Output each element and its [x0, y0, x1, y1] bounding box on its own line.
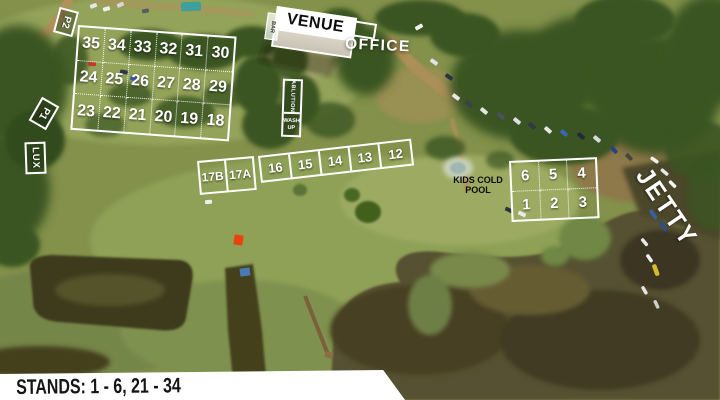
- stand-35: 35: [77, 27, 105, 62]
- stand-34: 34: [103, 29, 131, 64]
- stand-17B: 17B: [199, 161, 228, 193]
- lux-label: LUX: [27, 144, 45, 173]
- wash-up-label: WASH UP: [283, 114, 300, 136]
- p2-label: P2: [55, 9, 76, 34]
- lux-sign: LUX: [24, 142, 46, 175]
- stand-4: 4: [567, 159, 596, 189]
- stand-3: 3: [568, 188, 597, 218]
- stand-29: 29: [204, 70, 232, 105]
- stand-14: 14: [320, 148, 352, 174]
- stand-16: 16: [260, 154, 292, 180]
- stand-23: 23: [72, 94, 100, 129]
- red-tent-marker: [233, 234, 243, 245]
- stand-25: 25: [101, 63, 129, 98]
- ablution-label-wrap: ABLUTION: [284, 81, 301, 115]
- stand-13: 13: [350, 144, 382, 170]
- stand-26: 26: [126, 64, 154, 99]
- stand-27: 27: [152, 66, 180, 101]
- stand-31: 31: [180, 35, 208, 70]
- stand-28: 28: [178, 68, 206, 103]
- office-label: OFFICE: [345, 36, 412, 57]
- swimming-pool: [181, 1, 201, 11]
- ablution-label: ABLUTION: [284, 81, 301, 113]
- stand-12: 12: [379, 141, 411, 167]
- stand-grid-north: 35 34 33 32 31 30 24 25 26 27 28 29 23 2…: [70, 25, 236, 141]
- stand-2: 2: [540, 189, 569, 219]
- stand-17A: 17A: [226, 158, 255, 190]
- kids-pool-line2: POOL: [444, 186, 512, 196]
- wash-up-line2: UP: [287, 124, 295, 130]
- ablution-sign: ABLUTION WASH UP: [281, 79, 303, 138]
- stand-20: 20: [150, 100, 178, 135]
- stand-21: 21: [124, 98, 152, 133]
- stand-pair-17: 17B 17A: [197, 156, 257, 195]
- stand-grid-east: 6 5 4 1 2 3: [509, 157, 600, 222]
- footer-stands-text: STANDS: 1 - 6, 21 - 34: [16, 374, 181, 400]
- stand-19: 19: [176, 102, 204, 137]
- stand-18: 18: [201, 104, 229, 139]
- stand-5: 5: [539, 160, 568, 190]
- stand-33: 33: [129, 31, 157, 66]
- stand-1: 1: [512, 190, 541, 220]
- stand-30: 30: [206, 37, 234, 72]
- stand-22: 22: [98, 96, 126, 131]
- venue-site-map: 35 34 33 32 31 30 24 25 26 27 28 29 23 2…: [0, 0, 720, 400]
- stand-6: 6: [511, 162, 540, 192]
- blue-tarp: [239, 267, 250, 276]
- stand-15: 15: [290, 151, 322, 177]
- stand-24: 24: [75, 61, 103, 96]
- kids-cold-pool-label: KIDS COLD POOL: [444, 176, 512, 196]
- stand-32: 32: [155, 33, 183, 68]
- bar-label: BAR: [265, 13, 279, 39]
